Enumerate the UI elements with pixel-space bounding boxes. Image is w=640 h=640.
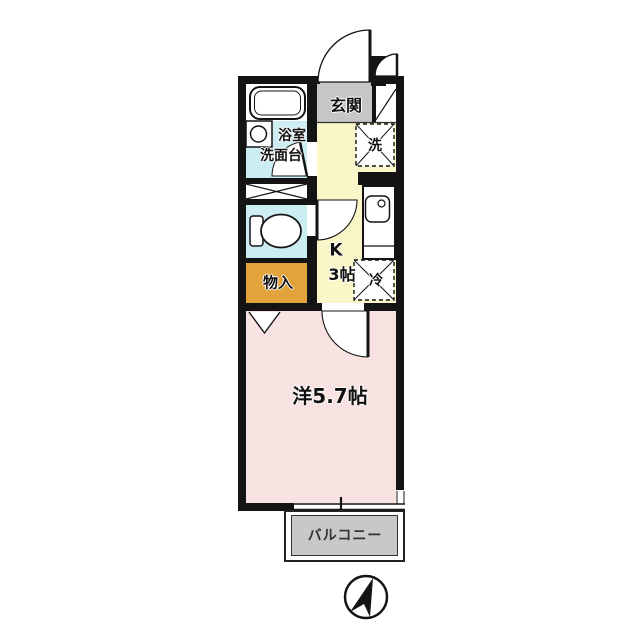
toilet-bowl-icon xyxy=(261,215,301,248)
hatch-strip-icon xyxy=(246,184,307,199)
kitchen-label-line1: K xyxy=(329,243,342,260)
bathroom-label-line2: 洗面台 xyxy=(260,149,302,163)
washbasin-icon xyxy=(251,126,267,142)
storage-door-icon xyxy=(249,312,280,333)
floorplan: 玄関 浴室 洗面台 洗 K 3帖 冷 物入 洋5.7帖 バルコニー xyxy=(0,0,640,640)
balcony-window-icon xyxy=(294,504,405,510)
bathroom-label-line1: 浴室 xyxy=(278,129,306,143)
window-right-frame xyxy=(397,491,404,504)
storage-label: 物入 xyxy=(263,276,293,291)
balcony-label: バルコニー xyxy=(308,529,383,543)
kitchen-sink-icon xyxy=(366,196,390,222)
entrance-door-swing xyxy=(318,30,370,82)
faucet-icon xyxy=(378,200,385,207)
kitchen-label-line2: 3帖 xyxy=(328,267,355,283)
room-door-swing xyxy=(322,311,368,357)
western-room-label: 洋5.7帖 xyxy=(292,386,367,406)
entrance-child-door-swing xyxy=(375,54,397,76)
washing-machine-label: 洗 xyxy=(368,139,382,153)
refrigerator-label: 冷 xyxy=(369,274,383,288)
toilet-door-swing xyxy=(317,200,357,240)
corner-diagonal-line xyxy=(375,89,396,121)
entrance-label: 玄関 xyxy=(330,98,362,114)
